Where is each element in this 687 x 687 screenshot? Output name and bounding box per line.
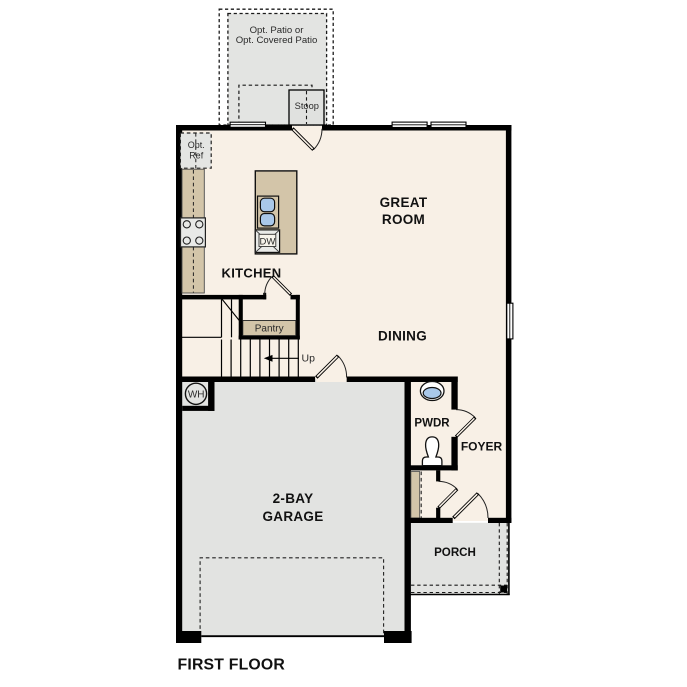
svg-text:GARAGE: GARAGE (262, 509, 323, 524)
svg-text:Pantry: Pantry (255, 324, 284, 335)
svg-text:DW: DW (259, 236, 275, 247)
svg-text:Ref: Ref (189, 151, 204, 161)
svg-text:FOYER: FOYER (461, 440, 503, 454)
svg-text:GREAT: GREAT (380, 195, 428, 210)
svg-text:Up: Up (302, 353, 316, 365)
svg-text:DINING: DINING (378, 329, 427, 344)
svg-text:WH: WH (188, 389, 205, 400)
svg-text:PORCH: PORCH (434, 546, 476, 559)
svg-text:Opt. Covered Patio: Opt. Covered Patio (236, 35, 318, 46)
svg-text:PWDR: PWDR (414, 418, 450, 430)
svg-text:2-BAY: 2-BAY (273, 491, 314, 506)
svg-text:Opt.: Opt. (188, 140, 205, 150)
svg-text:ROOM: ROOM (382, 212, 425, 227)
svg-text:FIRST FLOOR: FIRST FLOOR (178, 657, 286, 674)
svg-text:Stoop: Stoop (295, 101, 319, 111)
